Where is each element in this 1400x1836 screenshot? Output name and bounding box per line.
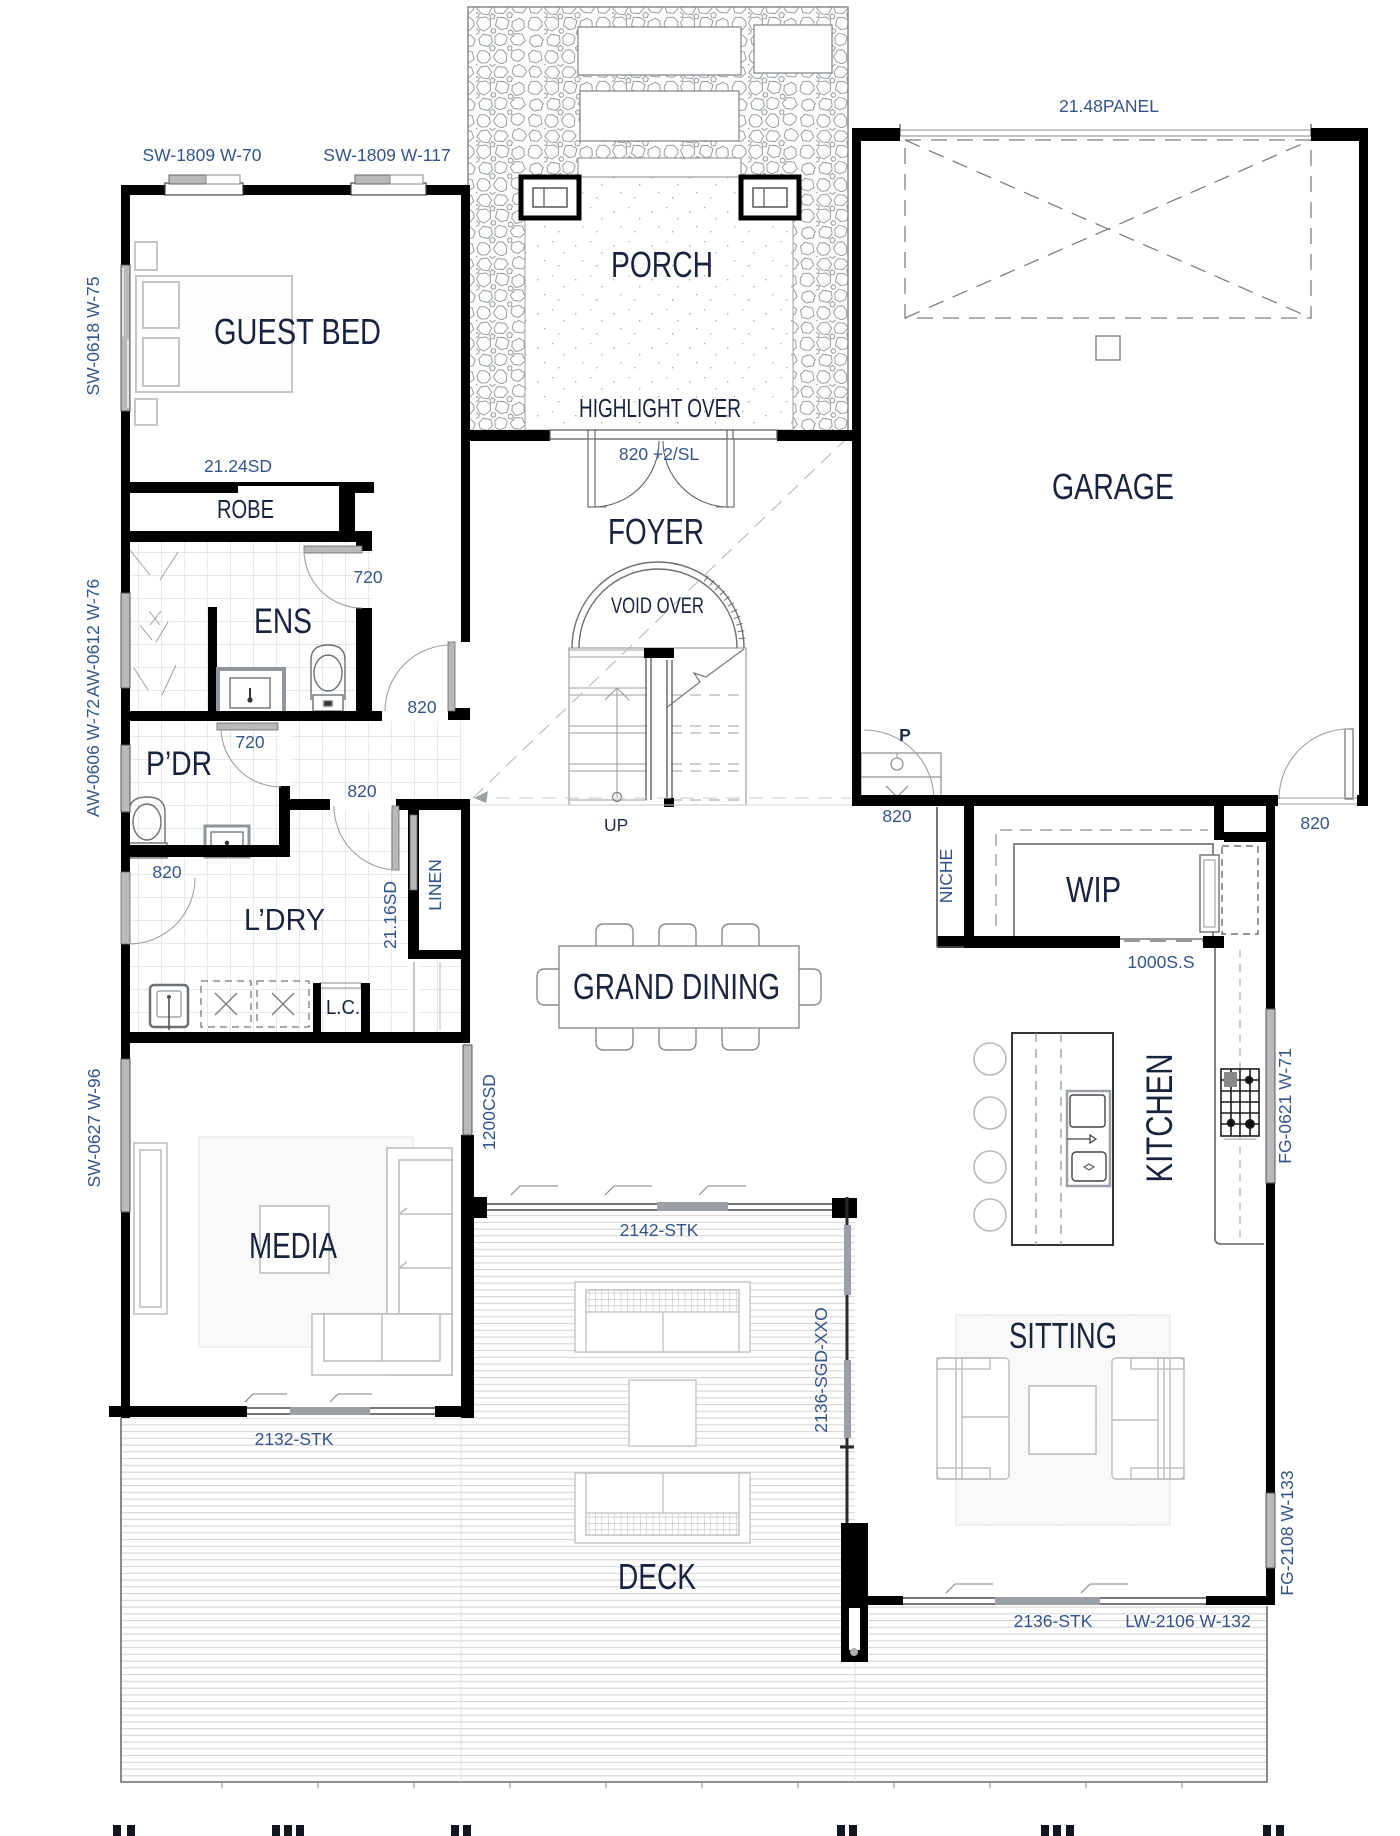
svg-text:DECK: DECK [618, 1556, 696, 1597]
svg-text:P: P [899, 725, 911, 745]
svg-text:P’DR: P’DR [146, 745, 212, 783]
svg-text:720: 720 [235, 732, 264, 752]
svg-text:FOYER: FOYER [608, 511, 704, 552]
svg-text:L.C.: L.C. [326, 997, 360, 1019]
svg-text:ROBE: ROBE [217, 494, 274, 524]
svg-text:PORCH: PORCH [611, 244, 713, 285]
svg-text:2132-STK: 2132-STK [255, 1429, 334, 1449]
svg-text:VOID OVER: VOID OVER [611, 593, 704, 618]
svg-text:720: 720 [353, 567, 382, 587]
svg-text:SW-1809 W-117: SW-1809 W-117 [323, 145, 450, 165]
svg-text:2136-STK: 2136-STK [1014, 1611, 1093, 1631]
svg-text:1000S.S: 1000S.S [1127, 952, 1194, 972]
svg-text:2142-STK: 2142-STK [620, 1220, 699, 1240]
svg-text:HIGHLIGHT OVER: HIGHLIGHT OVER [579, 393, 741, 423]
svg-text:NICHE: NICHE [936, 849, 956, 903]
svg-text:SW-0627 W-96: SW-0627 W-96 [84, 1069, 104, 1188]
svg-text:820: 820 [1300, 813, 1329, 833]
svg-text:FG-2108 W-133: FG-2108 W-133 [1277, 1470, 1297, 1595]
svg-text:SITTING: SITTING [1009, 1315, 1117, 1356]
svg-text:WIP: WIP [1066, 869, 1121, 910]
svg-text:FG-0621 W-71: FG-0621 W-71 [1275, 1048, 1295, 1163]
svg-text:UP: UP [604, 815, 628, 835]
svg-text:21.16SD: 21.16SD [380, 881, 400, 949]
svg-text:LW-2106 W-132: LW-2106 W-132 [1125, 1611, 1250, 1631]
svg-text:GARAGE: GARAGE [1052, 466, 1174, 507]
svg-text:21.48PANEL: 21.48PANEL [1059, 96, 1159, 116]
svg-text:KITCHEN: KITCHEN [1139, 1054, 1180, 1183]
svg-text:AW-0606 W-72: AW-0606 W-72 [83, 699, 103, 817]
svg-text:2136-SGD-XXO: 2136-SGD-XXO [811, 1307, 831, 1432]
svg-text:GUEST BED: GUEST BED [214, 311, 381, 352]
svg-text:820: 820 [882, 806, 911, 826]
svg-text:1200CSD: 1200CSD [479, 1074, 499, 1150]
svg-text:GRAND DINING: GRAND DINING [573, 966, 780, 1007]
svg-text:LINEN: LINEN [425, 859, 445, 911]
svg-text:SW-1809 W-70: SW-1809 W-70 [143, 145, 262, 165]
svg-text:L’DRY: L’DRY [244, 902, 325, 937]
svg-text:820: 820 [407, 697, 436, 717]
svg-text:21.24SD: 21.24SD [204, 456, 272, 476]
svg-text:AW-0612 W-76: AW-0612 W-76 [83, 579, 103, 697]
svg-text:820: 820 [347, 781, 376, 801]
svg-text:MEDIA: MEDIA [249, 1225, 337, 1266]
svg-text:SW-0618 W-75: SW-0618 W-75 [83, 277, 103, 396]
svg-text:ENS: ENS [254, 602, 312, 641]
svg-text:820 +2/SL: 820 +2/SL [619, 444, 700, 464]
svg-text:820: 820 [152, 862, 181, 882]
